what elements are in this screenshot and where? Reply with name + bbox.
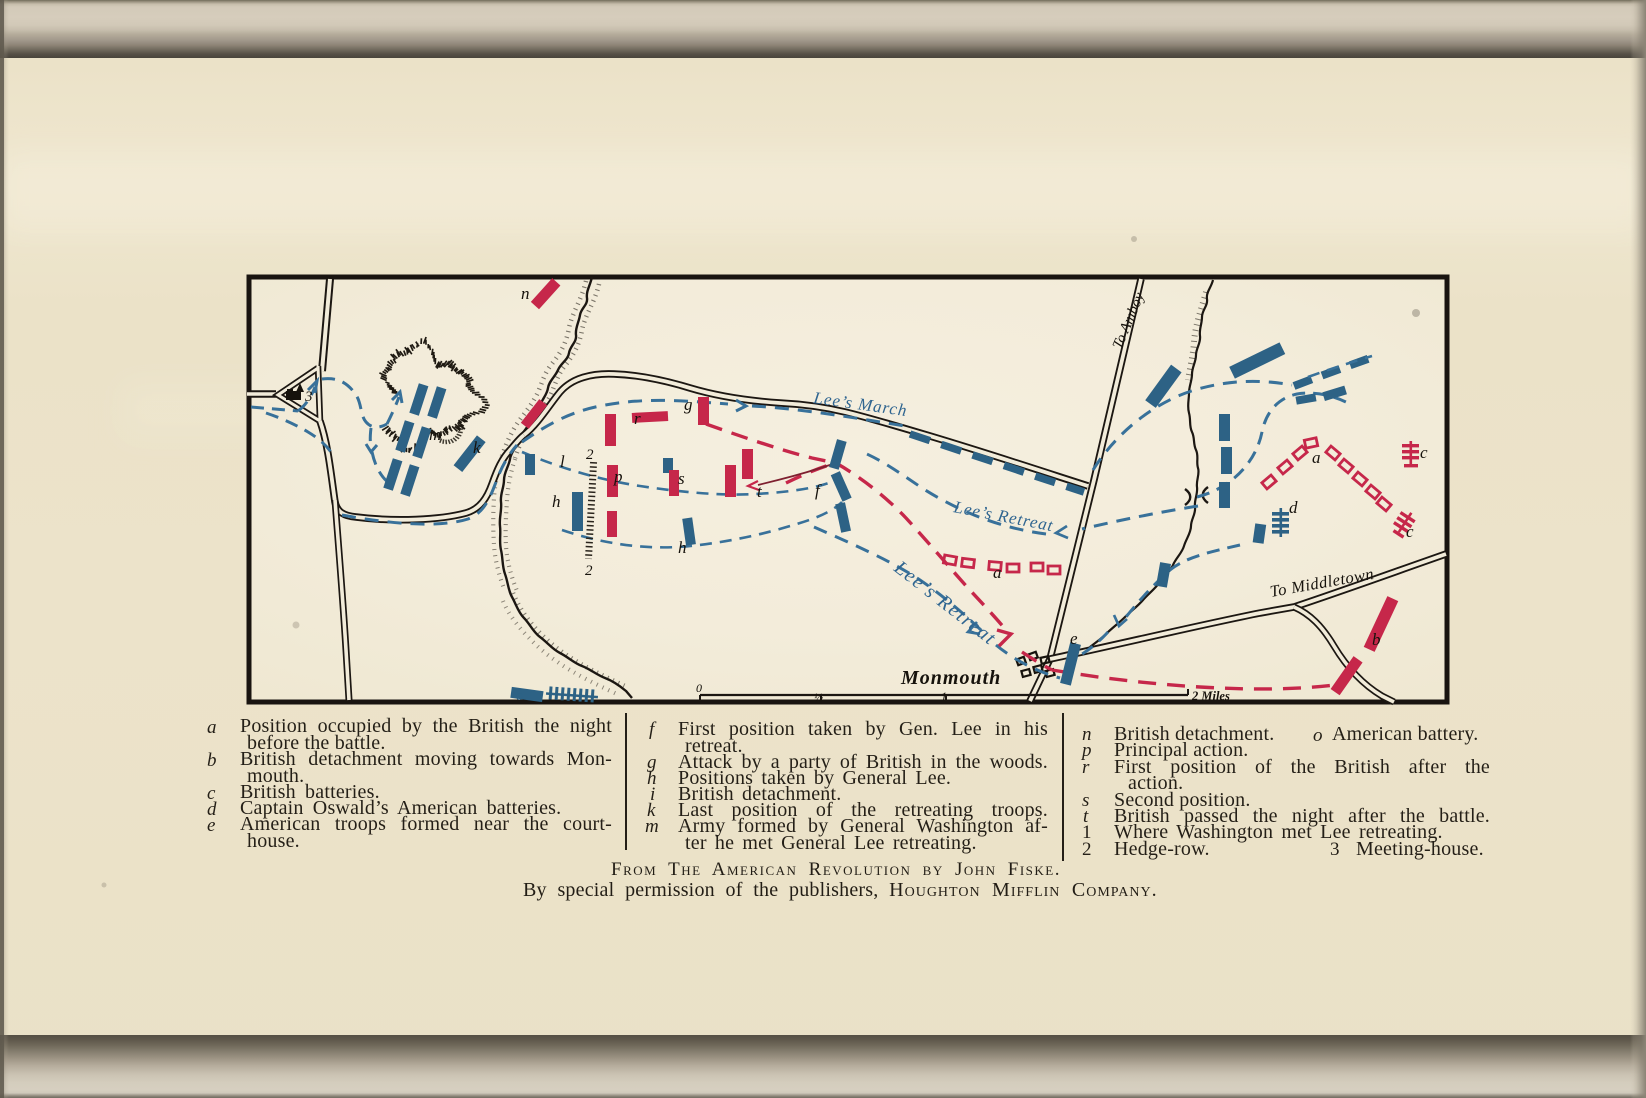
svg-text:d: d	[1289, 498, 1298, 517]
svg-text:n: n	[521, 284, 530, 303]
svg-text:½: ½	[814, 690, 823, 704]
svg-text:s: s	[678, 469, 685, 488]
svg-text:a: a	[1312, 448, 1321, 467]
svg-text:Monmouth: Monmouth	[900, 667, 1001, 689]
svg-text:1: 1	[941, 689, 947, 703]
svg-text:h: h	[552, 492, 561, 511]
svg-text:g: g	[684, 395, 693, 414]
svg-text:0: 0	[696, 681, 702, 695]
svg-text:r: r	[634, 409, 641, 428]
svg-text:h: h	[678, 538, 687, 557]
svg-text:l: l	[560, 452, 565, 471]
svg-text:b: b	[1372, 630, 1381, 649]
svg-text:k: k	[473, 438, 481, 457]
svg-text:m: m	[429, 425, 441, 444]
svg-text:p: p	[613, 467, 623, 486]
svg-text:2: 2	[585, 563, 593, 579]
svg-text:e: e	[1070, 629, 1078, 648]
svg-text:c: c	[1420, 443, 1428, 462]
svg-text:2 Miles: 2 Miles	[1191, 689, 1230, 703]
svg-text:3: 3	[304, 389, 313, 405]
svg-text:c: c	[1406, 522, 1414, 541]
svg-text:2: 2	[586, 447, 594, 463]
svg-text:o: o	[516, 688, 524, 704]
svg-text:a: a	[993, 563, 1002, 582]
